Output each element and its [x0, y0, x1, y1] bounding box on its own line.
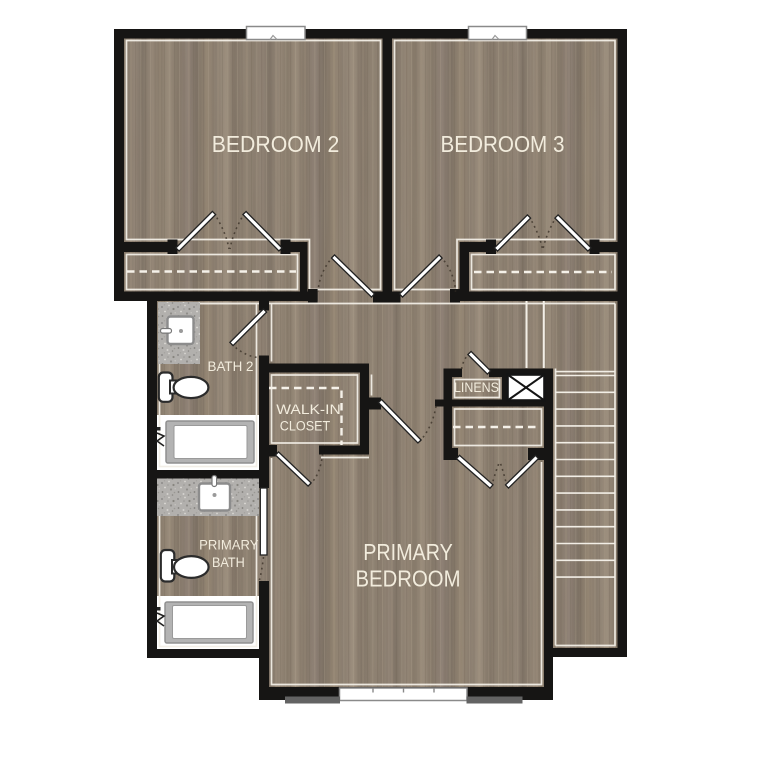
svg-text:PRIMARY: PRIMARY: [363, 539, 453, 565]
svg-text:BEDROOM: BEDROOM: [356, 566, 461, 592]
svg-text:BATH 2: BATH 2: [208, 359, 254, 374]
svg-text:CLOSET: CLOSET: [280, 419, 330, 434]
svg-text:BEDROOM 2: BEDROOM 2: [212, 131, 340, 157]
svg-text:LINENS: LINENS: [454, 380, 499, 395]
svg-text:BEDROOM 3: BEDROOM 3: [441, 131, 565, 157]
svg-text:PRIMARY: PRIMARY: [199, 538, 258, 553]
svg-text:BATH: BATH: [212, 555, 245, 570]
svg-text:WALK-IN: WALK-IN: [276, 402, 341, 417]
